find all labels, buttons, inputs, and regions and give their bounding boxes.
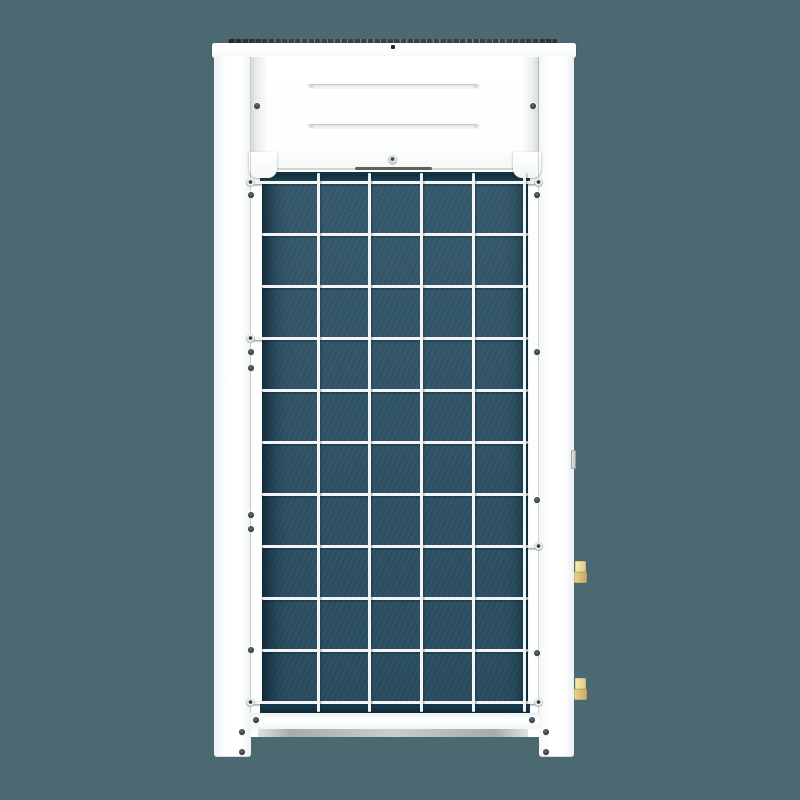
screw [534,497,540,503]
screw [534,349,540,355]
grid-wire-horizontal [262,389,528,392]
screw [530,103,536,109]
vent-slot [308,124,479,129]
vent-slot [308,84,479,89]
grid-wire-horizontal [248,701,541,704]
grid-wire-vertical [420,173,423,712]
wire-washer [246,178,255,187]
grid-wire-horizontal [262,285,528,288]
screw [253,717,259,723]
grid-wire-horizontal [248,337,528,340]
screw [248,526,254,532]
wire-washer [534,698,543,707]
coil-corner-bracket-left [249,152,277,178]
screw [543,729,549,735]
screw [239,729,245,735]
left-panel-seam [250,57,251,713]
grid-wire-horizontal [262,441,528,444]
screw [248,349,254,355]
coil-corner-bracket-right [513,152,541,178]
screw [248,647,254,653]
screw [388,155,397,164]
brass-fitting-top [575,678,587,689]
right-side-panel [539,56,574,757]
grid-wire-vertical [523,173,526,712]
wire-washer [246,334,255,343]
screw [534,192,540,198]
right-panel-seam [538,57,539,713]
screw [543,749,549,755]
brass-fitting-bottom [574,689,587,700]
product-photo-heat-pump [0,0,800,800]
grid-wire-vertical [317,173,320,712]
grid-wire-horizontal [248,181,541,184]
grid-wire-horizontal [262,597,528,600]
grid-wire-horizontal [262,649,528,652]
coil-bottom-edge [260,704,530,713]
panel-bottom-recess [355,167,432,170]
grid-wire-horizontal [262,233,528,236]
wire-washer [534,542,543,551]
grid-wire-vertical [472,173,475,712]
base-rail [251,713,539,729]
brass-fitting-bottom [574,572,587,583]
screw [529,717,535,723]
grid-wire-vertical [368,173,371,712]
upper-front-panel [267,57,523,170]
wire-washer [534,178,543,187]
brass-fitting-top [575,561,587,572]
brass-pipe-fitting [574,678,587,700]
screw [254,103,260,109]
brass-pipe-fitting [574,561,587,583]
screw [239,749,245,755]
grid-wire-horizontal [262,545,541,548]
screw [248,365,254,371]
left-side-panel [214,56,251,757]
screw [534,650,540,656]
coil-top-edge [260,172,530,181]
screw [248,512,254,518]
service-hinge-tab [571,450,576,469]
screw [248,192,254,198]
base-plinth [258,729,528,737]
wire-washer [246,698,255,707]
screw [391,45,395,49]
grid-wire-horizontal [262,493,528,496]
